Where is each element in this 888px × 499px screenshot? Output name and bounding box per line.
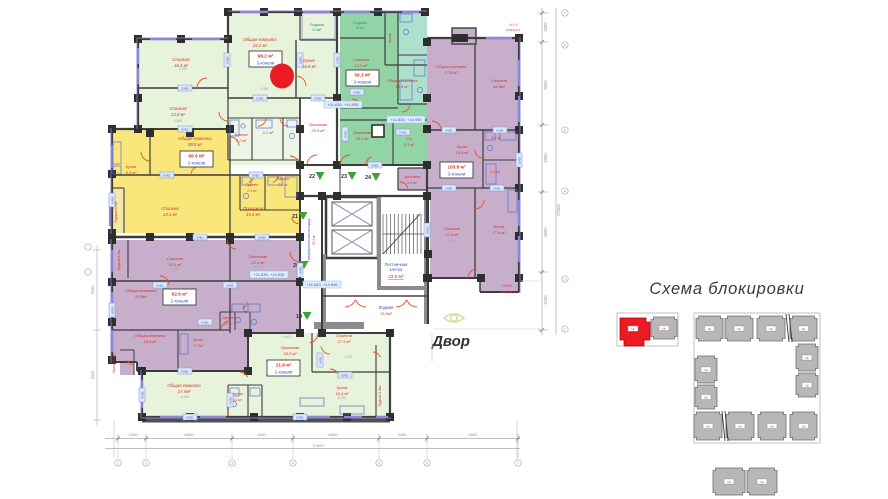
svg-text:13.1 м²: 13.1 м² xyxy=(355,63,369,68)
svg-text:КУБ1: КУБ1 xyxy=(296,416,304,420)
svg-text:9000: 9000 xyxy=(91,286,95,294)
svg-text:2: 2 xyxy=(564,328,566,332)
svg-text:КУБ1: КУБ1 xyxy=(445,129,453,133)
svg-text:4.400: 4.400 xyxy=(283,335,292,339)
svg-text:КУБ1: КУБ1 xyxy=(201,321,209,325)
svg-text:Общая комната: Общая комната xyxy=(243,37,277,42)
svg-text:КУБ1: КУБ1 xyxy=(186,416,194,420)
svg-text:КУБ1: КУБ1 xyxy=(111,196,115,204)
svg-text:6000: 6000 xyxy=(543,80,548,90)
svg-text:3: 3 xyxy=(231,462,233,466)
svg-text:9.3 м²: 9.3 м² xyxy=(126,170,137,175)
svg-text:6: 6 xyxy=(426,462,428,466)
svg-text:КУБ1: КУБ1 xyxy=(371,164,379,168)
svg-text:Общая комната: Общая комната xyxy=(178,136,212,141)
svg-text:2-хонали: 2-хонали xyxy=(354,79,372,84)
svg-text:22: 22 xyxy=(309,174,315,180)
svg-text:27600: 27600 xyxy=(556,204,561,216)
svg-text:98.2 м²: 98.2 м² xyxy=(258,54,274,59)
svg-text:4.080: 4.080 xyxy=(260,87,269,91)
svg-text:+11.640, +14.940: +11.640, +14.940 xyxy=(306,282,338,287)
svg-text:Схема блокировки: Схема блокировки xyxy=(649,280,804,298)
svg-text:3400: 3400 xyxy=(543,295,548,305)
svg-text:Общая комната: Общая комната xyxy=(125,288,157,293)
svg-text:Прихожая: Прихожая xyxy=(353,130,372,135)
svg-text:5.5м: 5.5м xyxy=(356,26,364,30)
svg-text:Прихожая: Прихожая xyxy=(249,254,268,259)
svg-text:24: 24 xyxy=(365,175,372,181)
svg-text:6.150: 6.150 xyxy=(181,395,190,399)
svg-text:5.3 м²: 5.3 м² xyxy=(404,143,415,147)
svg-text:23.2 м²: 23.2 м² xyxy=(252,43,268,48)
svg-text:Прихожая: Прихожая xyxy=(404,175,420,179)
svg-text:+11.630, +14.930: +11.630, +14.930 xyxy=(390,117,422,122)
svg-text:КУБ1: КУБ1 xyxy=(111,306,115,314)
svg-text:КУБ1: КУБ1 xyxy=(196,236,204,240)
svg-text:56.3 М²: 56.3 М² xyxy=(355,73,371,78)
svg-text:КУБ1: КУБ1 xyxy=(258,236,266,240)
svg-text:5.3м²: 5.3м² xyxy=(312,28,322,32)
svg-text:каморка: каморка xyxy=(506,28,521,32)
svg-text:1: 1 xyxy=(117,462,119,466)
svg-text:4200: 4200 xyxy=(543,153,548,163)
svg-text:Прихожая: Прихожая xyxy=(281,345,300,350)
svg-text:18.1 м²: 18.1 м² xyxy=(356,136,370,141)
svg-text:6600: 6600 xyxy=(185,432,195,437)
svg-text:КУБ1: КУБ1 xyxy=(181,87,189,91)
svg-text:10.8 м²: 10.8 м² xyxy=(456,150,470,155)
svg-text:2-хонали: 2-хонали xyxy=(171,298,189,303)
svg-text:КУБ1: КУБ1 xyxy=(252,174,260,178)
svg-text:КУБ1: КУБ1 xyxy=(496,129,504,133)
svg-text:4.850: 4.850 xyxy=(174,119,183,123)
svg-text:19: 19 xyxy=(296,314,302,320)
svg-text:2-хонали: 2-хонали xyxy=(188,160,206,165)
svg-text:23.5 М²: 23.5 М² xyxy=(388,274,404,279)
svg-text:6000: 6000 xyxy=(543,227,548,237)
svg-text:Кухня: Кухня xyxy=(126,164,138,169)
svg-text:13.0 м²: 13.0 м² xyxy=(171,112,186,117)
svg-text:15.4 м²: 15.4 м² xyxy=(246,212,261,217)
svg-text:37.4 м²: 37.4 м² xyxy=(312,235,316,245)
svg-text:6600: 6600 xyxy=(329,432,339,437)
svg-text:КУБ1: КУБ1 xyxy=(518,156,522,164)
svg-text:68.6 М²: 68.6 М² xyxy=(189,154,205,159)
svg-text:Спальня: Спальня xyxy=(161,206,179,211)
svg-text:Кухня: Кухня xyxy=(337,385,349,390)
svg-text:28.8м²: 28.8м² xyxy=(134,294,148,299)
svg-text:Спальня: Спальня xyxy=(353,57,370,62)
svg-text:4: 4 xyxy=(292,462,294,466)
svg-text:КУБ1: КУБ1 xyxy=(181,128,189,132)
svg-text:Ванная: Ванная xyxy=(223,316,234,320)
svg-text:Общая комната: Общая комната xyxy=(134,333,166,338)
svg-text:КУБ1: КУБ1 xyxy=(226,56,230,64)
svg-text:Спальня: Спальня xyxy=(336,333,353,338)
svg-text:6.150: 6.150 xyxy=(338,396,347,400)
svg-text:Лоджия 5.3м²: Лоджия 5.3м² xyxy=(117,249,121,271)
svg-text:КУБ1: КУБ1 xyxy=(314,97,322,101)
svg-text:КУБ1: КУБ1 xyxy=(229,396,233,404)
svg-text:Спальня: Спальня xyxy=(167,256,184,261)
svg-text:21.9 м²: 21.9 м² xyxy=(276,363,292,368)
svg-text:4.750: 4.750 xyxy=(448,239,457,243)
svg-text:17.4 м²: 17.4 м² xyxy=(446,232,460,237)
svg-text:Спальня: Спальня xyxy=(172,57,190,62)
svg-text:6: 6 xyxy=(564,44,566,48)
svg-text:клетка: клетка xyxy=(390,267,403,272)
svg-text:КУБ1: КУБ1 xyxy=(341,374,349,378)
svg-text:4.150: 4.150 xyxy=(344,355,353,359)
svg-text:19.4 м²: 19.4 м² xyxy=(144,339,158,344)
svg-text:Предварительная площадь: Предварительная площадь xyxy=(307,218,311,262)
svg-text:4: 4 xyxy=(564,190,566,194)
svg-text:6600: 6600 xyxy=(469,432,479,437)
svg-text:3300: 3300 xyxy=(543,22,548,32)
svg-text:5.310: 5.310 xyxy=(254,265,263,269)
svg-text:Общая комната: Общая комната xyxy=(386,78,418,83)
svg-text:Лоджия: Лоджия xyxy=(310,22,324,27)
svg-text:КУБ1: КУБ1 xyxy=(181,370,189,374)
svg-text:17.4м²: 17.4м² xyxy=(178,389,191,394)
svg-text:Ванная: Ванная xyxy=(277,177,289,181)
svg-text:13.9м²: 13.9м² xyxy=(380,311,393,316)
svg-text:1500: 1500 xyxy=(129,432,139,437)
svg-text:5: 5 xyxy=(378,462,380,466)
svg-text:4200: 4200 xyxy=(258,432,268,437)
svg-text:3-хонали: 3-хонали xyxy=(257,60,275,65)
svg-text:КУБ1: КУБ1 xyxy=(353,91,361,95)
svg-text:2.1 м²: 2.1 м² xyxy=(246,189,257,193)
svg-text:Двор: Двор xyxy=(430,333,470,350)
svg-text:КУБ1: КУБ1 xyxy=(299,56,303,64)
svg-text:3.7 м²: 3.7 м² xyxy=(236,139,247,143)
svg-text:13.1 м²: 13.1 м² xyxy=(163,212,178,217)
svg-text:5.3 м²: 5.3 м² xyxy=(407,181,417,185)
svg-text:9000: 9000 xyxy=(91,371,95,379)
svg-text:17.4 м²: 17.4 м² xyxy=(493,230,507,235)
svg-text:2-хонали: 2-хонали xyxy=(275,369,293,374)
svg-text:2: 2 xyxy=(145,462,147,466)
svg-text:3: 3 xyxy=(564,278,566,282)
svg-text:КУБ1: КУБ1 xyxy=(344,130,348,138)
svg-text:КУБ1: КУБ1 xyxy=(163,174,171,178)
svg-text:Лоджия: Лоджия xyxy=(379,305,394,310)
svg-text:КУБ1: КУБ1 xyxy=(319,356,323,364)
svg-text:каморку: каморку xyxy=(500,290,514,294)
svg-text:92.6 м²: 92.6 м² xyxy=(172,292,188,297)
svg-text:Кухня: Кухня xyxy=(193,338,203,342)
svg-text:17.3 м²: 17.3 м² xyxy=(338,339,352,344)
svg-text:Прихожая: Прихожая xyxy=(309,122,328,127)
svg-text:16.9м²: 16.9м² xyxy=(493,84,506,89)
svg-text:+49.5: +49.5 xyxy=(502,284,512,288)
svg-text:Спальня: Спальня xyxy=(491,78,508,83)
svg-text:+49.5: +49.5 xyxy=(508,23,518,27)
svg-text:5400: 5400 xyxy=(398,432,408,437)
svg-text:Кухня: Кухня xyxy=(388,33,392,43)
svg-text:КУБ1: КУБ1 xyxy=(141,391,145,399)
svg-text:21: 21 xyxy=(292,214,298,220)
svg-text:Кухня: Кухня xyxy=(303,58,315,63)
svg-text:Прихожая: Прихожая xyxy=(243,206,264,211)
svg-text:5: 5 xyxy=(564,129,566,133)
svg-text:5.900: 5.900 xyxy=(188,143,197,147)
svg-text:16.6 м²: 16.6 м² xyxy=(302,64,317,69)
svg-text:КУБ1: КУБ1 xyxy=(256,97,264,101)
svg-text:17.5 м²: 17.5 м² xyxy=(445,70,459,75)
svg-text:Общая комната: Общая комната xyxy=(435,64,467,69)
svg-text:Общая комната: Общая комната xyxy=(167,383,201,388)
svg-text:1.8 м²: 1.8 м² xyxy=(224,322,234,326)
svg-text:20.9 м²: 20.9 м² xyxy=(311,128,326,133)
svg-text:КУБ1: КУБ1 xyxy=(426,226,430,234)
svg-text:КУБ1: КУБ1 xyxy=(445,187,453,191)
svg-text:КУБ1: КУБ1 xyxy=(226,284,234,288)
svg-text:7.7 м²: 7.7 м² xyxy=(193,344,203,348)
svg-text:7: 7 xyxy=(564,12,566,16)
svg-text:3-хонали: 3-хонали xyxy=(448,171,466,176)
svg-text:Лоджия: Лоджия xyxy=(353,20,367,25)
svg-text:18.5 м²: 18.5 м² xyxy=(284,351,298,356)
svg-text:2.4 м²: 2.4 м² xyxy=(490,170,500,174)
svg-text:16.9 м²: 16.9 м² xyxy=(396,84,410,89)
svg-text:Спальня: Спальня xyxy=(444,226,461,231)
svg-text:КУБ1: КУБ1 xyxy=(493,187,501,191)
svg-text:Кухня: Кухня xyxy=(457,144,469,149)
svg-text:КУБ1: КУБ1 xyxy=(156,284,164,288)
svg-text:Спальня: Спальня xyxy=(169,106,187,111)
svg-text:4.750: 4.750 xyxy=(179,67,188,71)
svg-text:7: 7 xyxy=(517,462,519,466)
svg-text:2.2 м²: 2.2 м² xyxy=(263,131,274,135)
svg-text:+11.630, +14.930: +11.630, +14.930 xyxy=(253,272,285,277)
svg-text:Ванная: Ванная xyxy=(235,133,248,137)
svg-text:+11.630, +14.930: +11.630, +14.930 xyxy=(327,102,359,107)
svg-text:4.850: 4.850 xyxy=(171,267,180,271)
svg-text:КУБ1: КУБ1 xyxy=(299,266,303,274)
svg-text:23: 23 xyxy=(341,174,347,180)
svg-text:КУБ1: КУБ1 xyxy=(399,131,407,135)
svg-text:103.8 м²: 103.8 м² xyxy=(447,165,466,170)
svg-text:Лоджия 3.4м²: Лоджия 3.4м² xyxy=(378,385,382,407)
svg-text:КУБ1: КУБ1 xyxy=(336,56,340,64)
svg-text:Кухня: Кухня xyxy=(494,224,506,229)
svg-text:Балкон 2.4м²: Балкон 2.4м² xyxy=(112,353,116,372)
svg-text:27600: 27600 xyxy=(312,443,324,448)
